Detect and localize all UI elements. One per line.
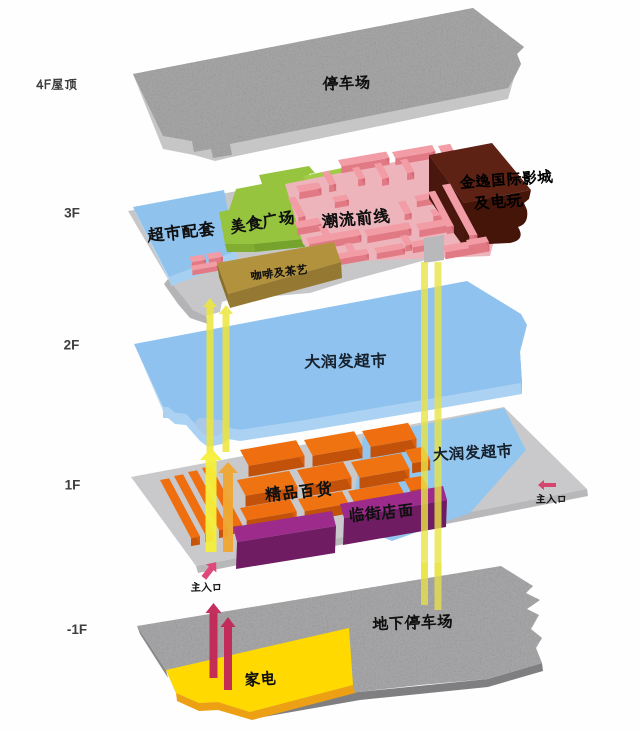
svg-text:1F: 1F	[65, 478, 81, 493]
svg-text:2F: 2F	[64, 338, 80, 353]
svg-text:3F: 3F	[64, 206, 80, 221]
svg-text:-1F: -1F	[67, 622, 87, 637]
